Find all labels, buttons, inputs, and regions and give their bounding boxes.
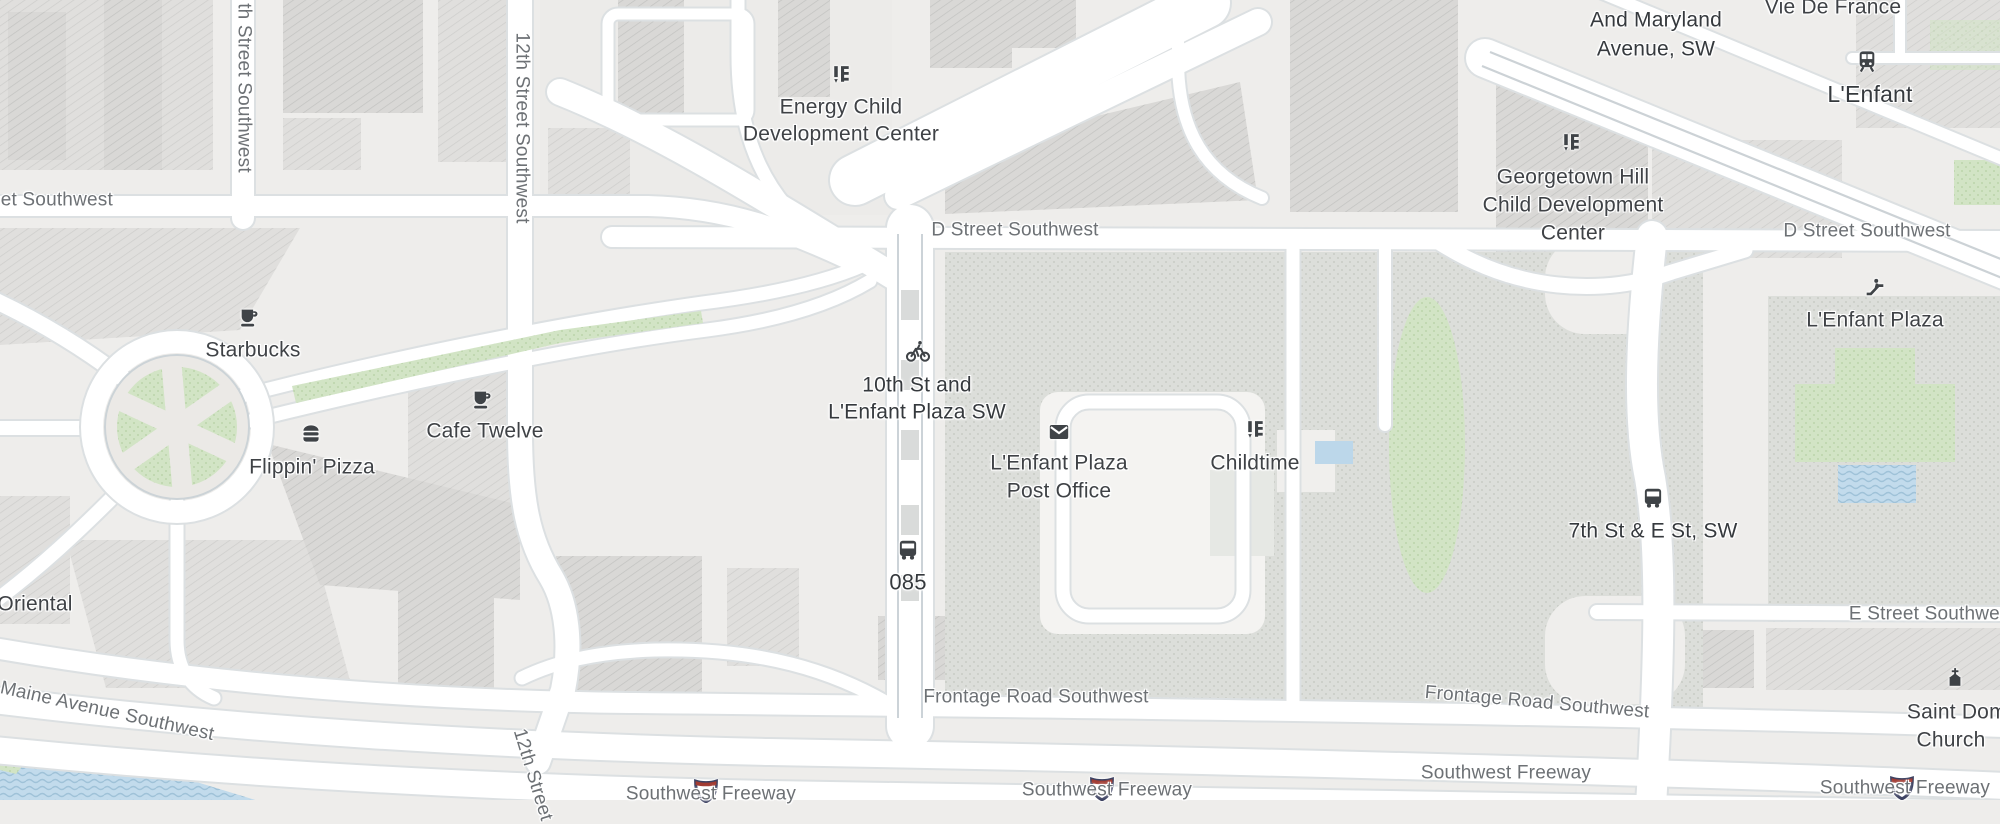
transit-label-bikeshare[interactable]: L'Enfant Plaza SW	[828, 398, 1006, 425]
street-label-southwest-freeway: Southwest Freeway	[626, 783, 796, 808]
poi-label-flippin-pizza[interactable]: Flippin' Pizza	[249, 453, 375, 480]
poi-label-childtime[interactable]: Childtime	[1210, 449, 1299, 476]
bikeshare-icon	[905, 339, 932, 366]
street-label-e-street: E Street Southwest	[1849, 603, 2000, 628]
poi-label-starbucks[interactable]: Starbucks	[205, 336, 300, 363]
poi-label-georgetown-cdc[interactable]: Center	[1541, 219, 1605, 246]
street-label-12th: 12th Street Southwest	[509, 32, 534, 223]
poi-label-cafe-twelve[interactable]: Cafe Twelve	[426, 417, 543, 444]
transit-label-stop-7th-maryland[interactable]: And Maryland	[1590, 6, 1722, 33]
poi-label-georgetown-cdc[interactable]: Child Development	[1483, 191, 1664, 218]
bus-icon	[1640, 485, 1666, 511]
transit-label-lenfant-station[interactable]: L'Enfant	[1827, 80, 1912, 110]
transit-label-bikeshare[interactable]: 10th St and	[862, 371, 972, 398]
coffee-icon	[471, 388, 496, 413]
transit-label-stop-7th-maryland[interactable]: Avenue, SW	[1597, 35, 1715, 62]
poi-label-post-office[interactable]: Post Office	[1007, 477, 1112, 504]
church-icon	[1943, 666, 1968, 691]
train-icon	[1854, 49, 1881, 76]
escalator-icon	[1863, 276, 1888, 301]
street-label-d-street: D Street Southwest	[931, 219, 1098, 244]
coffee-icon	[238, 306, 263, 331]
poi-label-post-office[interactable]: L'Enfant Plaza	[990, 449, 1128, 476]
street-label-13th: th Street Southwest	[231, 3, 256, 173]
poi-label-vie-de-france[interactable]: Vie De France	[1765, 0, 1901, 21]
street-label-southwest-freeway: Southwest Freeway	[1820, 777, 1990, 802]
pond	[1838, 465, 1916, 503]
poi-label-saint-dominic[interactable]: Saint Dominic	[1907, 698, 2000, 725]
poi-label-saint-dominic[interactable]: Church	[1917, 726, 1986, 753]
poi-label-energy-cdc[interactable]: Development Center	[743, 120, 939, 147]
poi-label-georgetown-cdc[interactable]: Georgetown Hill	[1497, 163, 1649, 190]
street-label-southwest-freeway: Southwest Freeway	[1421, 762, 1591, 787]
childcare-icon	[829, 63, 854, 88]
plaza-pool	[1315, 441, 1353, 464]
transit-label-bus-085[interactable]: 085	[889, 569, 926, 598]
transit-label-stop-7th-maryland[interactable]: 7th Street SW	[1589, 0, 1722, 3]
poi-label-lenfant-plaza-entrance[interactable]: L'Enfant Plaza	[1806, 306, 1944, 333]
street-label-left-partial: Street Southwest	[0, 189, 113, 214]
map-page: { "pois": { "starbucks": {"label": "Star…	[0, 0, 2000, 800]
bus-icon	[895, 537, 921, 563]
poi-label-energy-cdc[interactable]: Energy Child	[780, 93, 903, 120]
poi-label-oriental[interactable]: Oriental	[0, 590, 73, 617]
street-label-frontage-road: Frontage Road Southwest	[923, 686, 1148, 711]
transit-label-bus-7th-e[interactable]: 7th St & E St, SW	[1568, 517, 1737, 544]
street-label-d-street: D Street Southwest	[1783, 220, 1950, 245]
mail-icon	[1046, 419, 1072, 445]
childcare-icon	[1559, 131, 1584, 156]
burger-icon	[298, 421, 324, 447]
childcare-icon	[1243, 418, 1268, 443]
